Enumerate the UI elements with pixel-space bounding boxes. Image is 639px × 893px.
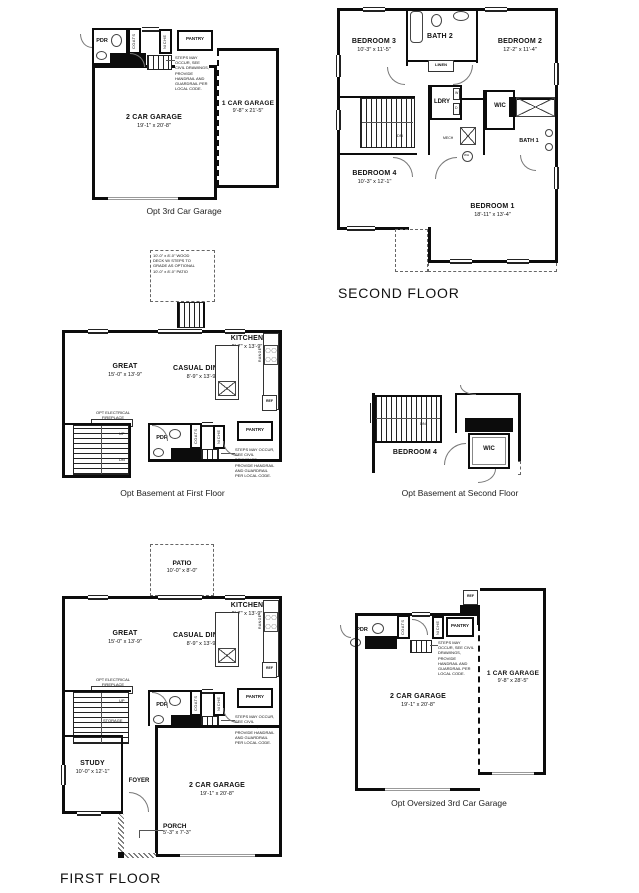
wall-right: [555, 8, 558, 263]
wall-bed1-left: [428, 227, 431, 263]
toilet-fixture: [169, 429, 181, 439]
porch-leader: [139, 830, 163, 831]
sink-fixture: [153, 715, 164, 724]
steps: [147, 55, 172, 70]
garage-1car-label: 1 CAR GARAGE 9'-8" x 28'-5": [480, 670, 546, 685]
coats-label: COATS: [131, 30, 136, 52]
door-arc: [412, 619, 428, 635]
room-name: 1 CAR GARAGE: [487, 670, 539, 677]
room-name: 2 CAR GARAGE: [126, 114, 182, 121]
coats-label: COATS: [193, 425, 198, 447]
window: [88, 595, 108, 600]
garage-door-opening: [180, 854, 255, 857]
porch-leader: [139, 830, 140, 838]
bedroom2-label: BEDROOM 2 12'-2" x 11'-4": [485, 38, 555, 54]
island-sink: [218, 381, 236, 396]
room-name: 2 CAR GARAGE: [390, 693, 446, 700]
study-label: STUDY 10'-0" x 12'-1": [65, 760, 120, 776]
window: [336, 55, 341, 77]
deck-steps: [177, 302, 205, 328]
wall-b3-bath2: [406, 8, 408, 66]
ref-label: REF: [463, 595, 478, 599]
patio-slider-door: [158, 329, 202, 334]
wall-fill: [509, 97, 516, 117]
plan-opt-basement-second: DN WIC BEDROOM 4 Opt Basement at Second …: [360, 385, 560, 500]
sink-fixture: [453, 11, 469, 21]
steps-note: STEPS MAY OCCUR, SEE CIVIL DRAWINGS, PRO…: [235, 447, 277, 478]
pantry-label: PANTRY: [177, 37, 213, 42]
room-dims: 10'-3" x 12'-1": [337, 179, 412, 186]
foyer-label: FOYER: [121, 778, 157, 785]
garage-door-opening: [108, 197, 178, 200]
wall-garage-top: [155, 725, 282, 728]
opt-extension-dashed: [428, 263, 557, 272]
window: [202, 689, 213, 694]
bath2-label: BATH 2: [415, 33, 465, 42]
window: [202, 422, 213, 427]
window: [88, 329, 108, 334]
garage-divider-dashed: [478, 625, 480, 775]
room-name: 1 CAR GARAGE: [222, 100, 274, 107]
niche-label: NICHE: [162, 31, 167, 52]
wall-left: [372, 393, 375, 473]
niche-label: NICHE: [435, 618, 440, 637]
door-arc: [478, 469, 496, 483]
bedroom1-label: BEDROOM 1 18'-11" x 13'-4": [430, 203, 555, 219]
stairs-dn-label: DN: [119, 457, 125, 462]
room-dims: 15'-0" x 13'-9": [80, 639, 170, 646]
plan-opt-basement-first: 10'-0" x 8'-0" WOOD DECK W/ STEPS TO GRA…: [55, 245, 290, 505]
mech-unit: [460, 127, 476, 145]
window: [363, 7, 385, 12]
garage-divider-dashed: [217, 50, 219, 186]
room-name: KITCHEN: [231, 602, 264, 609]
wall-bed4-top: [337, 153, 417, 155]
pdr-label: PDR: [350, 627, 374, 633]
door-arc: [80, 34, 92, 48]
coats-label: COATS: [193, 692, 198, 714]
bedroom4-label: BEDROOM 4: [375, 449, 455, 458]
room-dims: 10'-0" x 12'-1": [65, 769, 120, 776]
garage-door-opening: [492, 772, 534, 775]
room-name: GREAT: [113, 363, 138, 370]
room-name: PORCH: [163, 823, 186, 830]
wall-left: [62, 330, 65, 478]
stair-rail: [376, 418, 440, 419]
steps-note: STEPS MAY OCCUR, SEE CIVIL DRAWINGS, PRO…: [235, 714, 277, 745]
mech-label: MECH: [443, 136, 453, 141]
stair-rail: [362, 122, 413, 123]
patio-label: PATIO 10'-0" x 8'-0": [150, 560, 214, 574]
window: [225, 329, 245, 334]
garage-door-opening: [385, 788, 450, 791]
wall-top-right: [455, 393, 521, 395]
plan-caption: Opt Basement at Second Floor: [360, 488, 560, 498]
window: [412, 612, 430, 617]
porch-post: [118, 852, 124, 858]
stairs-up-label: UP: [119, 431, 125, 436]
wall-mid: [455, 393, 457, 433]
window: [336, 110, 341, 130]
room-dims: 9'-8" x 21'-5": [217, 108, 279, 115]
pdr-label: PDR: [92, 38, 112, 44]
note-leader: [430, 645, 438, 646]
coats-label: COATS: [400, 617, 405, 637]
wall-divider-top: [477, 613, 480, 625]
wall-bottom-right: [148, 459, 282, 462]
room-name: STUDY: [80, 760, 105, 767]
room-dims: 5'-3" x 7'-3": [163, 830, 213, 836]
toilet-fixture: [169, 696, 181, 706]
pantry-label: PANTRY: [237, 695, 273, 700]
wh-label: WH: [464, 154, 469, 158]
ref-label: REF: [262, 400, 277, 404]
toilet-fixture: [431, 14, 442, 27]
bedroom3-label: BEDROOM 3 10'-3" x 11'-5": [343, 38, 405, 54]
room-dims: 15'-0" x 13'-9": [80, 372, 170, 379]
window: [77, 811, 101, 816]
wall-study-right: [121, 735, 123, 813]
plan-opt-3rd-car-garage: PDR COATS NICHE PANTRY STEPS MAY OCCUR, …: [78, 8, 290, 220]
opt-extension-dashed: [395, 229, 428, 272]
room-name: GREAT: [113, 630, 138, 637]
stairs: [360, 98, 415, 148]
room-name: 2 CAR GARAGE: [189, 782, 245, 789]
room-dims: 18'-11" x 13'-4": [430, 212, 555, 219]
wic-label: WIC: [468, 446, 510, 453]
sink-fixture: [545, 143, 553, 151]
range-label: RANGE: [258, 345, 262, 365]
wall-fill: [465, 418, 513, 432]
door-arc: [435, 157, 457, 179]
stairs-up-label: UP: [119, 698, 125, 703]
door-arc: [152, 692, 168, 708]
sink-fixture: [545, 129, 553, 137]
wall-garage-left: [155, 725, 158, 857]
stairs-dn-label: DN: [420, 421, 426, 426]
window: [554, 167, 559, 189]
garage-1car-label: 1 CAR GARAGE 9'-8" x 21'-5": [217, 100, 279, 115]
closet-rod: [516, 97, 555, 117]
plan-caption: Opt Basement at First Floor: [55, 488, 290, 498]
wall-1car-top: [480, 588, 546, 591]
range-label: RANGE: [258, 612, 262, 632]
wall-pdr-left: [148, 690, 150, 726]
door-arc: [152, 425, 168, 441]
garage-2car-label: 2 CAR GARAGE 19'-1" x 20'-8": [378, 693, 458, 709]
ref-label: REF: [262, 667, 277, 671]
door-arc: [393, 157, 413, 177]
toilet-fixture: [372, 623, 384, 634]
plan-caption: SECOND FLOOR: [338, 285, 460, 301]
room-dims: 19'-1" x 20'-8": [378, 702, 458, 709]
room-dims: 9'-8" x 28'-5": [480, 678, 546, 685]
pantry-label: PANTRY: [237, 428, 273, 433]
wall-stair-right: [129, 423, 131, 478]
wall-study-top: [62, 735, 123, 737]
toilet-fixture: [111, 34, 122, 47]
window: [142, 27, 159, 32]
wall-bottom-left: [62, 475, 131, 478]
window: [485, 7, 507, 12]
steps-note: STEPS MAY OCCUR, SEE CIVIL DRAWINGS, PRO…: [175, 55, 209, 91]
plan-first-floor: PATIO 10'-0" x 8'-0" KITCHEN 9'-7" x 13'…: [55, 540, 290, 890]
room-dims: 19'-1" x 20'-8": [104, 123, 204, 130]
wall-break: [518, 461, 521, 475]
sink-fixture: [96, 51, 107, 60]
porch-label: PORCH 5'-3" x 7'-3": [163, 823, 213, 836]
window: [225, 595, 245, 600]
note-leader: [166, 60, 175, 61]
room-name: BEDROOM 4: [352, 170, 396, 177]
entry-door-arc: [340, 625, 351, 638]
room-name: BEDROOM 2: [498, 38, 542, 45]
plan-opt-oversized-garage: REF PDR COATS NICHE PANTRY STEPS MAY OCC…: [340, 585, 558, 813]
dryer-label: D: [455, 106, 458, 111]
patio-slider-door: [158, 595, 202, 600]
room-name: BEDROOM 1: [470, 203, 514, 210]
room-dims: 19'-1" x 20'-8": [167, 791, 267, 798]
window: [554, 63, 559, 85]
linen-label: LINEN: [428, 63, 454, 67]
room-name: KITCHEN: [231, 335, 264, 342]
great-label: GREAT 15'-0" x 13'-9": [80, 363, 170, 379]
sink-fixture: [153, 448, 164, 457]
great-label: GREAT 15'-0" x 13'-9": [80, 630, 170, 646]
room-dims: 12'-2" x 11'-4": [485, 47, 555, 54]
plan-caption: FIRST FLOOR: [60, 870, 161, 886]
room-name: BEDROOM 3: [352, 38, 396, 45]
front-door-arc: [129, 792, 149, 812]
door-arc: [453, 65, 473, 85]
door-arc: [520, 155, 536, 171]
deck-note: 10'-0" x 8'-0" WOOD DECK W/ STEPS TO GRA…: [153, 253, 197, 274]
plan-caption: Opt Oversized 3rd Car Garage: [340, 798, 558, 808]
stairs: [374, 395, 442, 443]
ldry-label: LDRY: [429, 99, 455, 106]
door-arc: [444, 443, 466, 465]
room-name: PATIO: [173, 560, 192, 567]
bath1-label: BATH 1: [513, 138, 545, 144]
niche-label: NICHE: [216, 427, 221, 447]
island-sink: [218, 648, 236, 663]
garage-2car-label: 2 CAR GARAGE 19'-1" x 20'-8": [104, 114, 204, 130]
wall-bath2-b2: [476, 8, 478, 63]
plan-second-floor: DN LINEN W D LDRY WIC BATH 1 MECH WH BED…: [335, 5, 565, 305]
wall-pdr-left: [148, 423, 150, 459]
storage-label: STORAGE: [103, 718, 123, 723]
room-dims: 10'-0" x 8'-0": [150, 568, 214, 575]
wall-garage-left: [355, 613, 358, 791]
steps-note: STEPS MAY OCCUR, SEE CIVIL DRAWINGS, PRO…: [438, 640, 474, 676]
garage-2car-label: 2 CAR GARAGE 19'-1" x 20'-8": [167, 782, 267, 798]
garage-1car-walls: [217, 48, 279, 188]
niche-label: NICHE: [216, 694, 221, 714]
stair-rail: [101, 426, 102, 474]
stairs-dn-label: DN: [397, 133, 403, 138]
wall-fill: [365, 636, 397, 649]
washer-label: W: [455, 91, 458, 96]
floorplan-sheet: PDR COATS NICHE PANTRY STEPS MAY OCCUR, …: [0, 0, 639, 893]
wall-fill: [460, 605, 480, 613]
wall-right: [518, 393, 521, 461]
steps: [410, 640, 432, 653]
range-burners: [264, 612, 278, 632]
range-burners: [264, 345, 278, 365]
plan-caption: Opt 3rd Car Garage: [78, 206, 290, 216]
door-arc: [387, 67, 405, 85]
room-dims: 10'-3" x 11'-5": [343, 47, 405, 54]
pantry-label: PANTRY: [446, 624, 474, 629]
window: [347, 226, 375, 231]
